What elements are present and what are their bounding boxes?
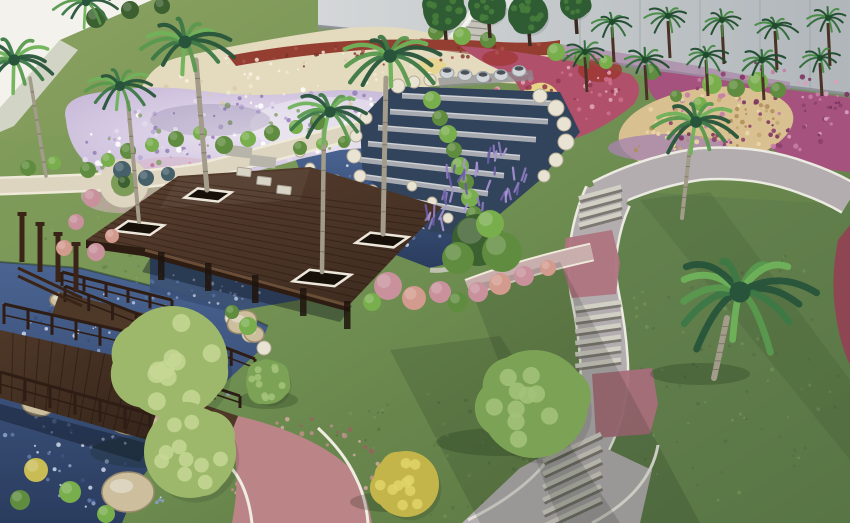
gravel-speckle [802, 269, 805, 272]
gravel-speckle [645, 325, 649, 329]
trellis-post-cap [36, 222, 45, 226]
gravel-speckle [770, 109, 774, 113]
gravel-speckle [227, 62, 229, 64]
gravel-speckle [771, 70, 775, 74]
gravel-speckle [461, 54, 465, 58]
gravel-speckle [381, 71, 383, 73]
palm-crown [730, 282, 751, 303]
gravel-speckle [386, 404, 388, 406]
gravel-speckle [93, 151, 97, 155]
gravel-speckle [701, 94, 704, 97]
palm-crown [115, 81, 125, 91]
gravel-speckle [100, 164, 103, 167]
tree-leaf-cluster [168, 353, 186, 371]
purple-flower-spike [466, 184, 467, 194]
tree-leaf-cluster [511, 5, 517, 11]
gravel-speckle [370, 103, 374, 107]
tree-leaf-cluster [194, 458, 209, 473]
gravel-speckle [495, 51, 499, 55]
tree-leaf-cluster [213, 452, 228, 467]
gravel-speckle [744, 108, 746, 110]
gravel-speckle [741, 342, 744, 345]
tree-leaf-cluster [268, 393, 275, 400]
palm-crown [179, 36, 192, 49]
white-rock [347, 149, 361, 163]
gravel-speckle [255, 105, 258, 108]
gravel-speckle [836, 95, 839, 98]
water-pebble [58, 470, 61, 473]
gravel-speckle [466, 55, 470, 59]
gravel-speckle [740, 120, 745, 125]
water-pebble [144, 296, 147, 299]
boulder-highlight [110, 479, 133, 493]
gravel-speckle [322, 51, 325, 54]
shrub-highlight [119, 177, 125, 183]
gravel-speckle [133, 110, 136, 113]
deck-post [252, 275, 259, 303]
gravel-speckle [772, 117, 775, 120]
shrub-highlight [82, 163, 90, 171]
gravel-speckle [85, 141, 88, 144]
gravel-speckle [723, 307, 726, 310]
gravel-speckle [335, 45, 337, 47]
gravel-speckle [542, 84, 547, 89]
water-pebble [68, 464, 71, 467]
deck-post [344, 301, 351, 329]
gravel-speckle [135, 277, 137, 279]
tree-leaf-cluster [375, 480, 386, 491]
palm-trunk [645, 65, 647, 100]
gravel-speckle [317, 85, 319, 87]
gravel-speckle [344, 59, 347, 62]
gravel-speckle [834, 107, 837, 110]
shrub-highlight [85, 190, 94, 199]
gravel-speckle [690, 286, 693, 289]
water-pebble [30, 322, 32, 324]
shrub-highlight [294, 142, 301, 149]
tree-leaf-cluster [507, 401, 524, 418]
tree-leaf-cluster [149, 362, 167, 380]
palm-trunk [820, 63, 822, 96]
gravel-speckle [607, 111, 611, 115]
trellis-post-cap [54, 232, 63, 236]
gravel-speckle [717, 499, 720, 502]
gravel-speckle [834, 80, 839, 85]
gravel-speckle [694, 139, 699, 144]
gravel-speckle [804, 447, 807, 450]
shrub-highlight [542, 261, 550, 269]
gravel-speckle [443, 515, 447, 519]
shrub-highlight [365, 294, 374, 303]
gravel-speckle [294, 47, 298, 51]
shrub-highlight [431, 283, 442, 294]
gravel-speckle [798, 148, 802, 152]
tree-leaf-cluster [484, 5, 490, 11]
shrub-highlight [48, 157, 55, 164]
gravel-speckle [44, 237, 47, 240]
gravel-speckle [537, 42, 541, 46]
palm-crown [665, 13, 671, 19]
stone-urn-opening [443, 68, 452, 72]
gravel-speckle [115, 142, 120, 147]
gravel-speckle [605, 90, 608, 93]
shrub-highlight [12, 492, 22, 502]
gravel-speckle [199, 144, 201, 146]
gravel-speckle [679, 147, 682, 150]
purple-flower-spike [488, 153, 489, 163]
shrub-highlight [445, 244, 461, 260]
gravel-speckle [182, 149, 187, 154]
gravel-speckle [310, 417, 314, 421]
gravel-speckle [739, 413, 742, 416]
trellis-post [74, 246, 79, 292]
purple-flower-spike [506, 189, 508, 196]
gravel-speckle [669, 121, 673, 125]
gravel-speckle [754, 99, 759, 104]
tree-leaf-cluster [412, 499, 423, 510]
shrub-highlight [377, 274, 391, 288]
gravel-speckle [353, 454, 356, 457]
gravel-speckle [460, 51, 462, 53]
purple-flower-spike [454, 166, 455, 173]
gravel-speckle [573, 98, 575, 100]
water-pebble [11, 433, 15, 437]
gravel-speckle [802, 103, 806, 107]
gravel-speckle [97, 216, 99, 218]
gravel-speckle [299, 431, 304, 436]
water-pebble [45, 327, 49, 331]
gravel-speckle [759, 103, 763, 107]
water-pebble [158, 498, 161, 501]
shrub-highlight [479, 212, 493, 226]
palm-crown [817, 55, 823, 61]
gravel-speckle [381, 411, 384, 414]
shrub-highlight [146, 139, 153, 146]
white-rock [549, 153, 563, 167]
shrub-highlight [468, 207, 476, 215]
gravel-speckle [106, 256, 108, 258]
gravel-speckle [778, 133, 781, 136]
gravel-speckle [824, 117, 828, 121]
shrub-highlight [434, 111, 442, 119]
gravel-speckle [691, 466, 694, 469]
gravel-speckle [296, 109, 300, 113]
water-pebble [217, 302, 220, 305]
gravel-speckle [771, 129, 776, 134]
tree-leaf-cluster [519, 3, 525, 9]
gravel-speckle [731, 419, 734, 422]
gravel-speckle [614, 93, 617, 96]
gravel-speckle [779, 435, 782, 438]
gravel-speckle [808, 78, 811, 81]
gravel-speckle [250, 102, 252, 104]
purple-flower-spike [464, 170, 465, 180]
gravel-speckle [433, 444, 435, 446]
gravel-speckle [793, 143, 798, 148]
gravel-speckle [124, 270, 127, 273]
gravel-speckle [550, 89, 553, 92]
gravel-speckle [818, 134, 821, 137]
gravel-speckle [779, 270, 782, 273]
gravel-speckle [105, 204, 108, 207]
gravel-speckle [687, 140, 689, 142]
palm-crown [8, 54, 19, 65]
gravel-speckle [765, 104, 770, 109]
gravel-speckle [736, 144, 739, 147]
white-rock [407, 181, 417, 191]
gravel-speckle [745, 113, 747, 115]
gravel-speckle [804, 110, 806, 112]
stone-urn-opening [515, 66, 524, 70]
gravel-speckle [207, 155, 211, 159]
palm-trunk [322, 130, 324, 272]
gravel-speckle [770, 368, 774, 372]
gravel-speckle [138, 114, 142, 118]
gravel-speckle [724, 439, 728, 443]
gravel-speckle [585, 118, 587, 120]
gravel-speckle [678, 384, 681, 387]
tree-leaf-cluster [148, 392, 166, 410]
gravel-speckle [771, 124, 773, 126]
gravel-speckle [635, 306, 638, 309]
tree-leaf-cluster [198, 475, 213, 490]
tree-leaf-cluster [248, 376, 255, 383]
gravel-speckle [740, 75, 745, 80]
gravel-speckle [176, 147, 182, 153]
gravel-speckle [665, 385, 668, 388]
tree-leaf-cluster [184, 415, 199, 430]
gravel-speckle [273, 58, 276, 61]
gravel-speckle [165, 149, 169, 153]
gravel-speckle [363, 445, 367, 449]
gravel-speckle [767, 380, 769, 382]
gravel-speckle [588, 83, 593, 88]
gravel-speckle [330, 425, 333, 428]
water-pebble [56, 442, 61, 447]
gravel-speckle [362, 94, 366, 98]
tree-leaf-cluster [271, 364, 278, 371]
gravel-speckle [208, 94, 211, 97]
tree-leaf-cluster [254, 374, 261, 381]
gravel-speckle [170, 156, 172, 158]
gravel-speckle [255, 58, 259, 62]
gravel-speckle [108, 137, 111, 140]
gravel-speckle [577, 99, 579, 101]
tree-leaf-cluster [500, 369, 517, 386]
gravel-speckle [334, 48, 337, 51]
water-pebble [132, 301, 135, 304]
gravel-speckle [161, 146, 164, 149]
tree-leaf-cluster [159, 445, 174, 460]
gravel-speckle [286, 54, 289, 57]
purple-flower-spike [513, 168, 514, 180]
gravel-speckle [375, 78, 378, 81]
gravel-speckle [207, 144, 209, 146]
gravel-speckle [243, 73, 246, 76]
gravel-speckle [728, 139, 731, 142]
gravel-speckle [249, 93, 251, 95]
gravel-speckle [649, 107, 654, 112]
gravel-speckle [285, 417, 290, 422]
gravel-speckle [226, 90, 231, 95]
white-rock [548, 100, 564, 116]
gravel-speckle [142, 121, 148, 127]
gravel-speckle [651, 130, 655, 134]
tree-leaf-cluster [401, 477, 412, 488]
water-pebble [346, 164, 349, 167]
gravel-speckle [305, 128, 308, 131]
gravel-speckle [729, 141, 732, 144]
gravel-speckle [752, 353, 755, 356]
shrub-highlight [140, 171, 148, 179]
gravel-speckle [284, 117, 287, 120]
gravel-speckle [201, 80, 203, 82]
gravel-speckle [275, 422, 278, 425]
shrub-highlight [61, 483, 72, 494]
deck-post [158, 252, 165, 280]
gravel-speckle [797, 81, 800, 84]
gravel-speckle [687, 422, 689, 424]
water-pebble [155, 501, 159, 505]
gravel-speckle [568, 73, 572, 77]
gravel-speckle [758, 112, 762, 116]
gravel-speckle [676, 441, 678, 443]
tree-leaf-cluster [203, 344, 221, 362]
gravel-speckle [242, 60, 246, 64]
gravel-speckle [793, 465, 796, 468]
tree-leaf-cluster [167, 418, 182, 433]
gravel-speckle [266, 140, 270, 144]
gravel-speckle [598, 93, 602, 97]
gravel-speckle [500, 47, 504, 51]
palm-crown [690, 116, 702, 128]
gravel-speckle [646, 131, 649, 134]
shrub-highlight [58, 241, 66, 249]
gravel-speckle [697, 78, 701, 82]
gravel-speckle [342, 433, 345, 436]
gravel-speckle [285, 71, 289, 75]
gravel-speckle [656, 132, 660, 136]
tree-leaf-cluster [570, 10, 575, 15]
gravel-speckle [248, 72, 252, 76]
gravel-speckle [244, 95, 247, 98]
gravel-speckle [803, 81, 808, 86]
tree-leaf-cluster [262, 394, 269, 401]
gravel-speckle [765, 109, 768, 112]
purple-flower-spike [482, 203, 483, 211]
palm-crown [703, 52, 709, 58]
gravel-speckle [784, 255, 787, 258]
shrub-highlight [242, 132, 250, 140]
gravel-speckle [835, 102, 838, 105]
gravel-speckle [741, 138, 745, 142]
gravel-speckle [801, 96, 804, 99]
gravel-speckle [808, 95, 813, 100]
gravel-speckle [193, 99, 198, 104]
white-rock [538, 170, 550, 182]
gravel-speckle [225, 57, 228, 60]
gravel-speckle [340, 423, 342, 425]
shrub-highlight [549, 44, 558, 53]
shrub-highlight [162, 168, 169, 175]
water-pebble [193, 294, 196, 297]
white-rock [354, 170, 366, 182]
gravel-speckle [233, 86, 237, 90]
gravel-speckle [95, 160, 101, 166]
gravel-speckle [310, 431, 314, 435]
stone-urn-opening [497, 70, 506, 74]
purple-flower-spike [495, 151, 496, 160]
gravel-speckle [278, 70, 281, 73]
water-pebble [191, 290, 193, 292]
palm-crown [719, 17, 725, 23]
trellis-post-cap [18, 212, 27, 216]
gravel-speckle [561, 71, 564, 74]
purple-flower-spike [478, 198, 480, 205]
gravel-speckle [687, 132, 691, 136]
gravel-speckle [349, 412, 353, 416]
palm-crown [324, 106, 335, 117]
tree-leaf-cluster [401, 458, 412, 469]
gravel-speckle [451, 506, 455, 510]
tree-leaf-cluster [519, 387, 536, 404]
gravel-speckle [297, 68, 299, 70]
tree-leaf-cluster [430, 2, 437, 9]
tree-leaf-cluster [483, 15, 489, 21]
gravel-speckle [696, 484, 698, 486]
gravel-speckle [818, 139, 823, 144]
water-pebble [135, 282, 137, 284]
gravel-speckle [150, 163, 154, 167]
tree-leaf-cluster [457, 7, 464, 14]
shrub-highlight [89, 244, 98, 253]
gravel-speckle [231, 488, 234, 491]
stone-urn-opening [461, 70, 470, 74]
shrub-highlight [26, 460, 38, 472]
gravel-speckle [467, 506, 469, 508]
gravel-speckle [766, 120, 770, 124]
shrub-highlight [266, 126, 274, 134]
gravel-speckle [556, 79, 561, 84]
gravel-speckle [700, 136, 703, 139]
gravel-speckle [373, 73, 377, 77]
shrub-highlight [170, 132, 178, 140]
tree-leaf-cluster [528, 24, 534, 30]
gravel-speckle [827, 106, 830, 109]
gravel-speckle [238, 96, 242, 100]
water-pebble [160, 496, 162, 498]
gravel-speckle [641, 291, 644, 294]
gravel-speckle [137, 265, 139, 267]
shrub-highlight [102, 154, 109, 161]
stone-urn-opening [479, 72, 488, 76]
gravel-speckle [618, 88, 621, 91]
tree-leaf-cluster [510, 431, 527, 448]
gravel-speckle [734, 114, 738, 118]
gravel-speckle [597, 77, 599, 79]
gravel-speckle [120, 208, 123, 211]
gravel-speckle [736, 126, 739, 129]
gravel-speckle [787, 135, 791, 139]
gravel-speckle [744, 125, 747, 128]
gravel-speckle [681, 109, 684, 112]
water-pebble [152, 281, 155, 284]
gravel-speckle [368, 410, 370, 412]
gravel-speckle [364, 486, 368, 490]
water-pebble [85, 506, 87, 508]
gravel-speckle [114, 129, 119, 134]
gravel-speckle [748, 125, 751, 128]
